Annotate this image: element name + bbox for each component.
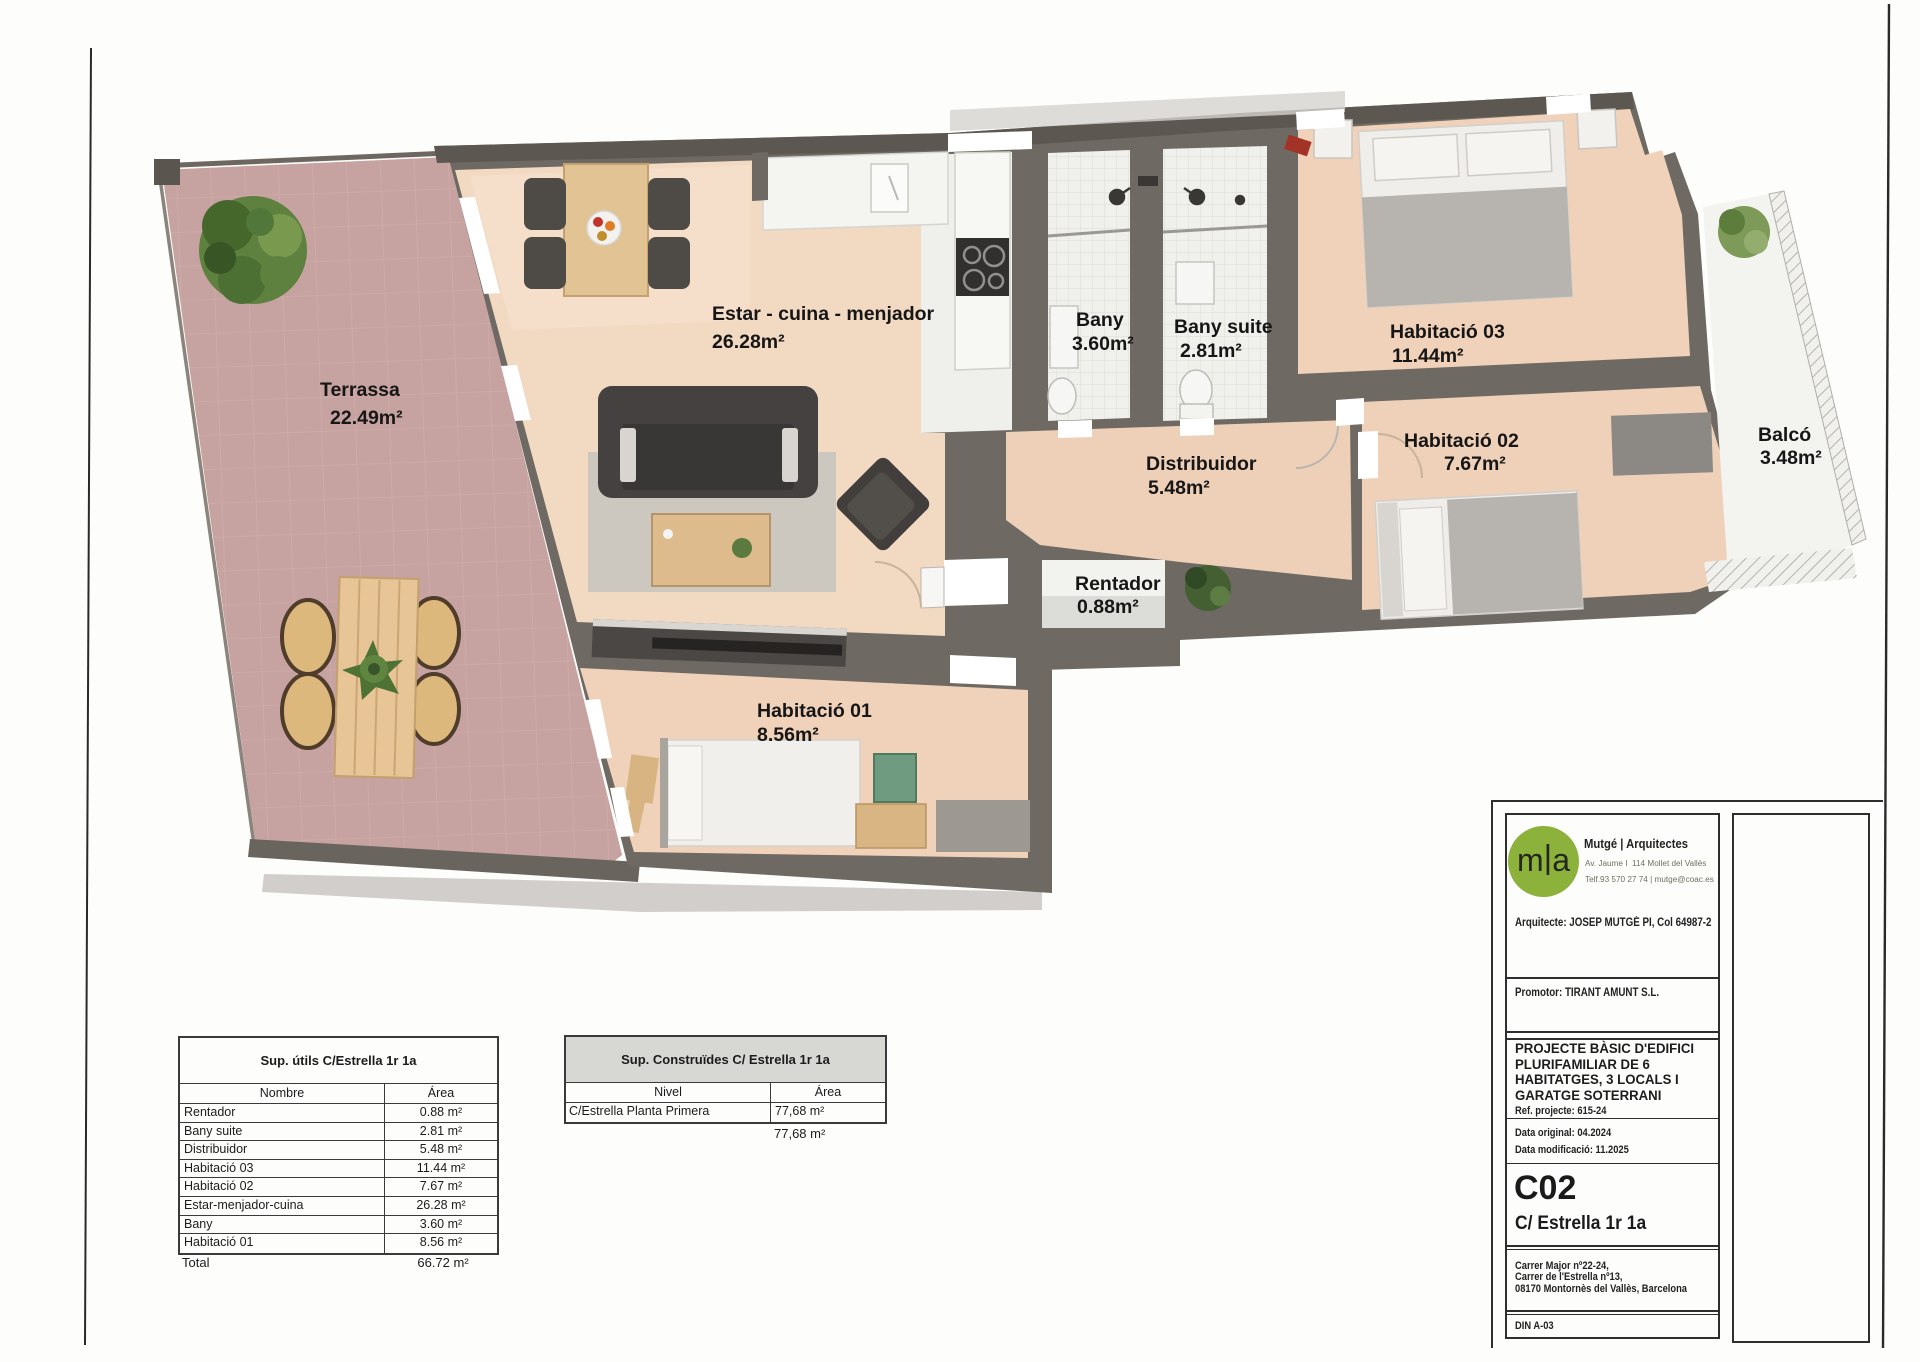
svg-text:Estar - cuina - menjador: Estar - cuina - menjador	[712, 303, 935, 325]
svg-text:2.81m²: 2.81m²	[1180, 340, 1242, 362]
svg-text:22.49m²: 22.49m²	[330, 407, 403, 429]
svg-text:3.48m²: 3.48m²	[1760, 447, 1822, 469]
svg-text:26.28m²: 26.28m²	[712, 331, 785, 353]
svg-text:Habitació 03: Habitació 03	[1390, 321, 1505, 343]
svg-text:Balcó: Balcó	[1758, 424, 1811, 446]
svg-text:7.67m²: 7.67m²	[1444, 453, 1506, 475]
svg-text:Habitació 02: Habitació 02	[1404, 430, 1519, 452]
svg-text:0.88m²: 0.88m²	[1077, 596, 1139, 618]
svg-text:Bany suite: Bany suite	[1174, 316, 1273, 338]
svg-text:5.48m²: 5.48m²	[1148, 477, 1210, 499]
svg-text:8.56m²: 8.56m²	[757, 724, 819, 746]
svg-text:Bany: Bany	[1076, 309, 1124, 331]
svg-text:Distribuidor: Distribuidor	[1146, 453, 1257, 475]
svg-text:Habitació 01: Habitació 01	[757, 700, 872, 722]
svg-text:Terrassa: Terrassa	[320, 379, 400, 401]
svg-text:3.60m²: 3.60m²	[1072, 333, 1134, 355]
svg-text:11.44m²: 11.44m²	[1392, 345, 1464, 367]
svg-text:Rentador: Rentador	[1075, 573, 1161, 595]
